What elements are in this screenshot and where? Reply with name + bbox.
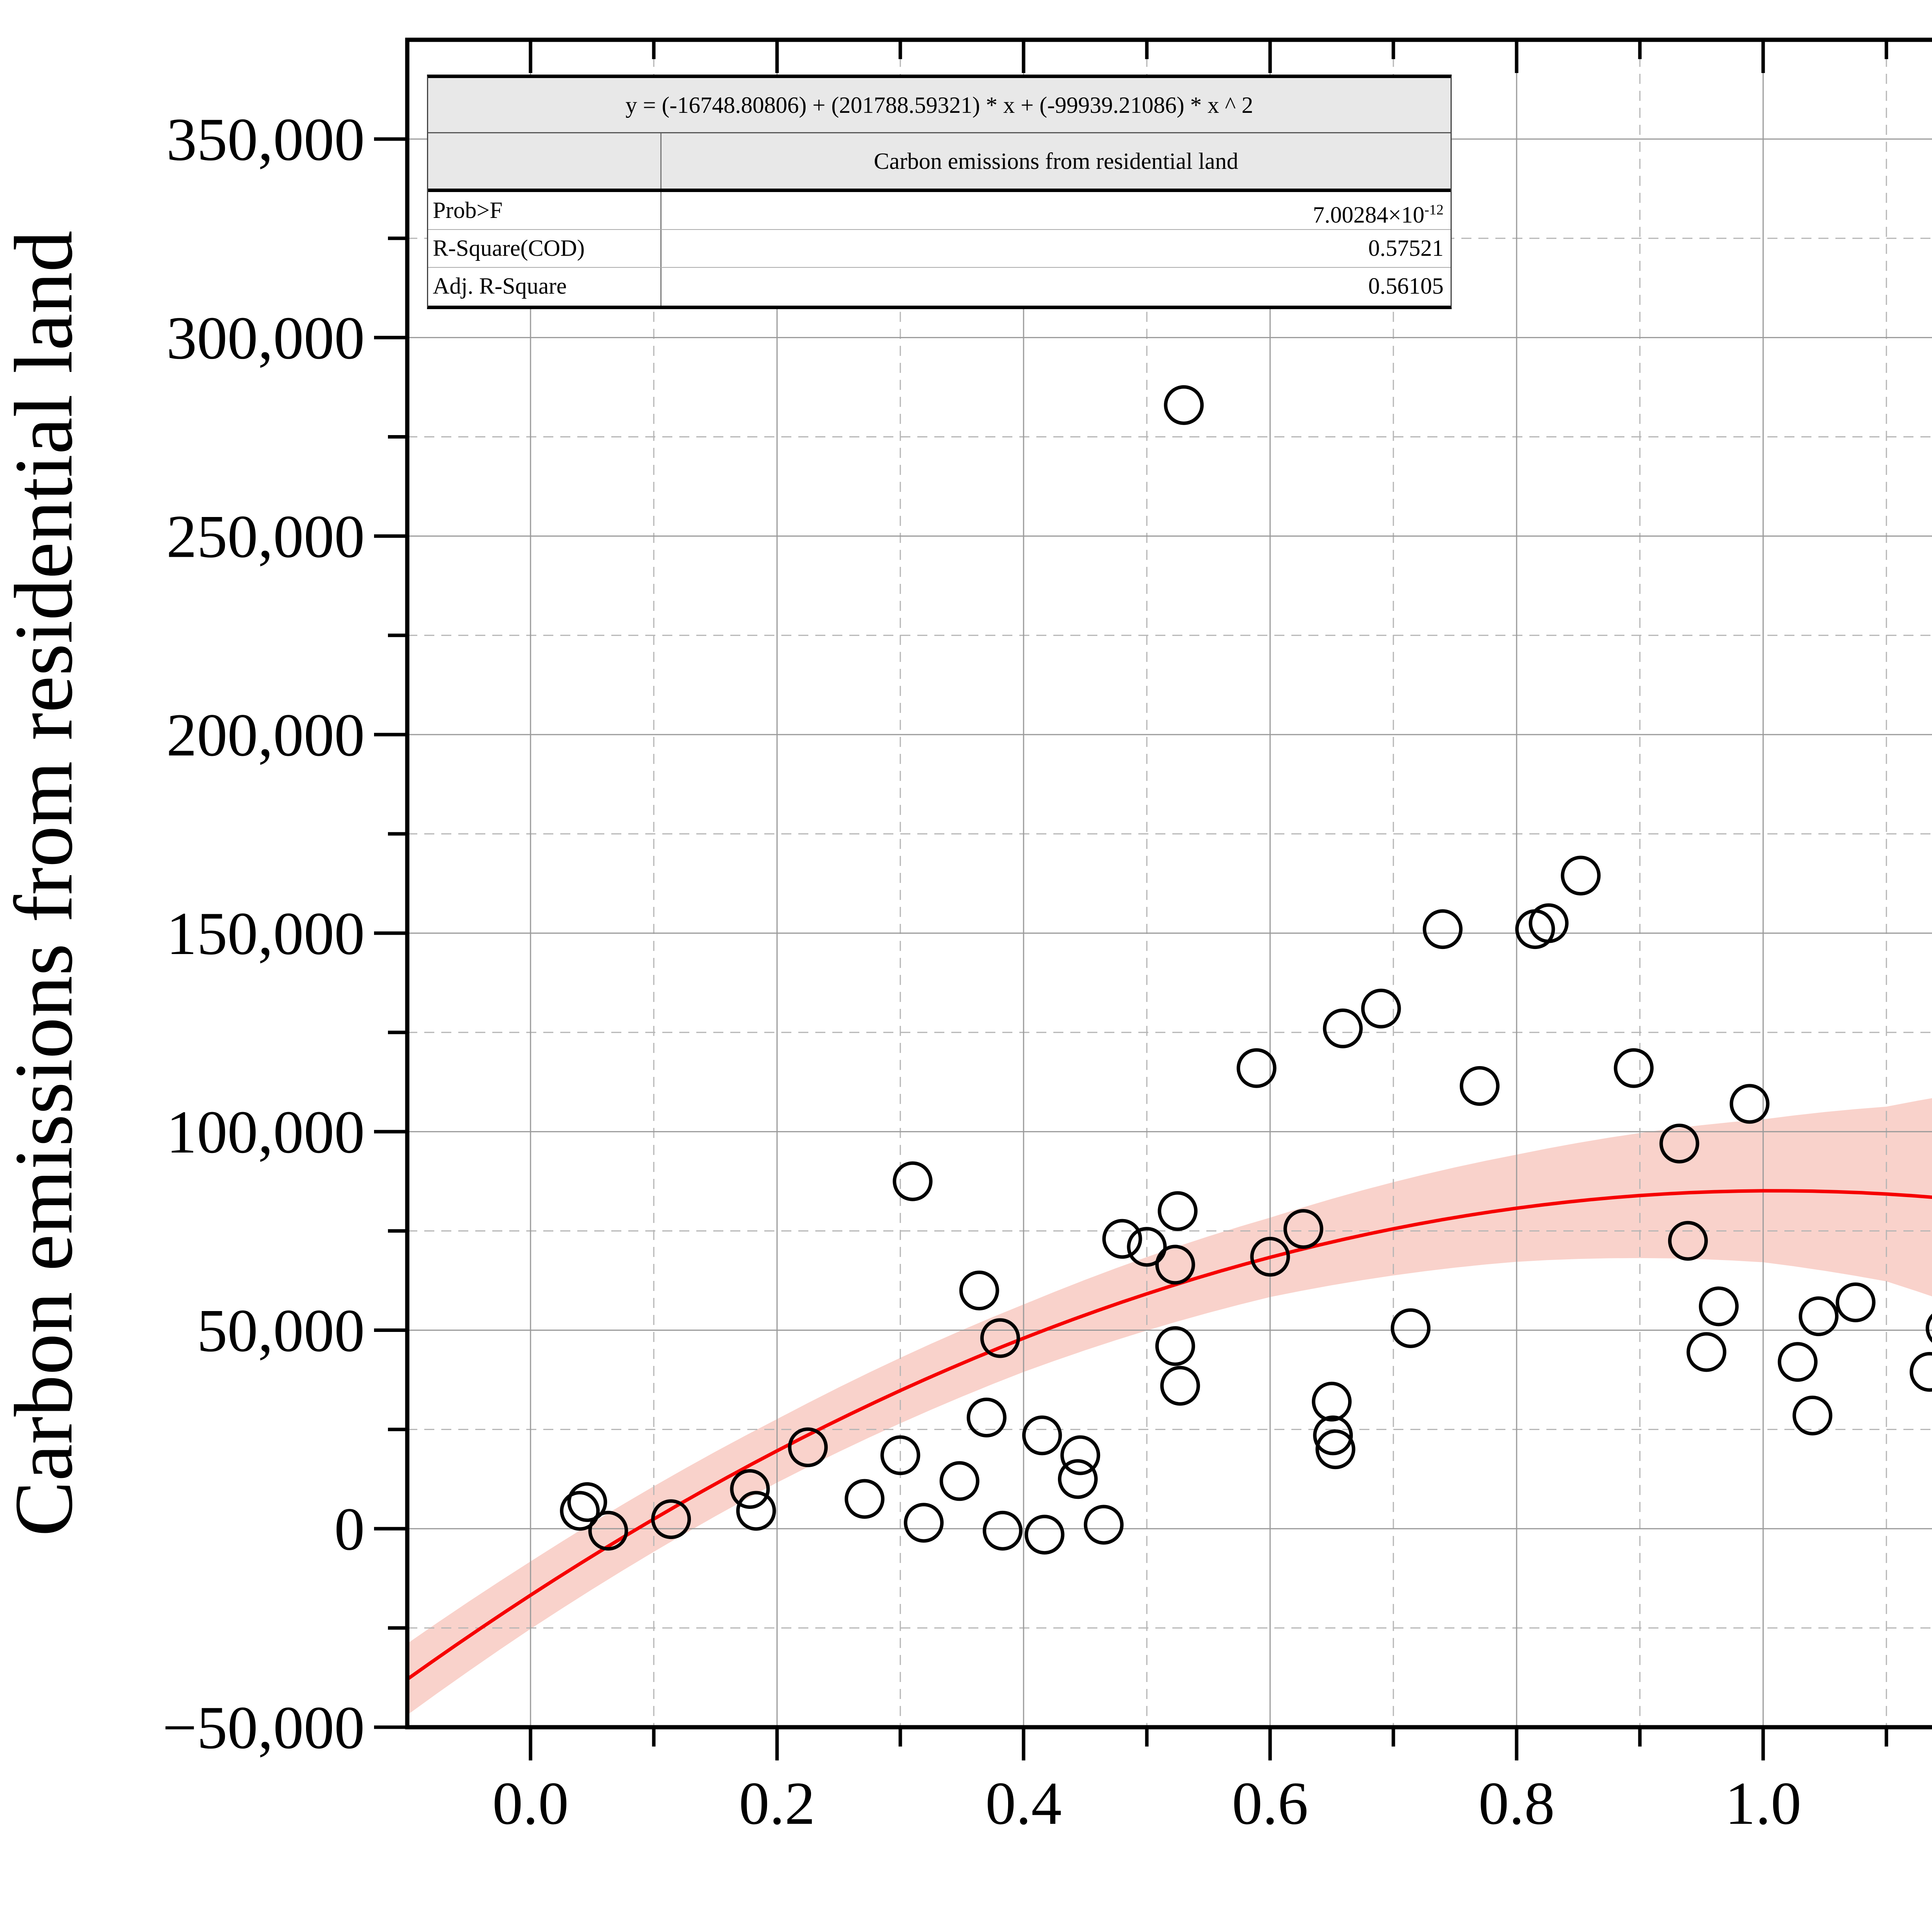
scatter-point bbox=[1160, 1193, 1196, 1229]
rsquare-label: R-Square(COD) bbox=[428, 230, 662, 267]
x-tick-label: 1.0 bbox=[1725, 1770, 1801, 1837]
x-tick-label: 0.8 bbox=[1478, 1770, 1555, 1837]
confidence-band bbox=[407, 1019, 1932, 1715]
scatter-point bbox=[1024, 1417, 1060, 1454]
adj-rsquare-value: 0.56105 bbox=[662, 268, 1451, 306]
scatter-point bbox=[1731, 1086, 1768, 1122]
scatter-point bbox=[1461, 1068, 1498, 1104]
scatter-point bbox=[1779, 1344, 1816, 1380]
rsquare-value: 0.57521 bbox=[662, 230, 1451, 267]
scatter-point bbox=[1927, 1310, 1932, 1346]
stat-row-adj-rsquare: Adj. R-Square 0.56105 bbox=[428, 268, 1451, 306]
scatter-point bbox=[1026, 1517, 1063, 1553]
scatter-points bbox=[562, 206, 1932, 1553]
stats-header-label: Carbon emissions from residential land bbox=[662, 133, 1451, 189]
scatter-point bbox=[1162, 1367, 1198, 1404]
axis-titles: Floor area ratioCarbon emissions from re… bbox=[0, 231, 1711, 1932]
x-tick-label: 0.4 bbox=[985, 1770, 1062, 1837]
scatter-point bbox=[1531, 905, 1567, 941]
y-tick-label: 0 bbox=[334, 1495, 365, 1563]
scatter-point bbox=[846, 1481, 883, 1517]
stats-header-empty-cell bbox=[428, 133, 662, 189]
scatter-point bbox=[1325, 1010, 1361, 1047]
regression-stats-table: y = (-16748.80806) + (201788.59321) * x … bbox=[427, 75, 1452, 309]
y-tick-label: 300,000 bbox=[167, 304, 365, 372]
scatter-point bbox=[1801, 1298, 1837, 1335]
scatter-point bbox=[961, 1272, 997, 1309]
y-tick-label: 50,000 bbox=[197, 1297, 365, 1364]
y-tick-label: 250,000 bbox=[167, 503, 365, 570]
prob-value: 7.00284×10-12 bbox=[662, 192, 1451, 229]
scatter-point bbox=[1794, 1397, 1831, 1434]
scatter-point bbox=[1688, 1334, 1725, 1370]
scatter-point bbox=[1314, 1383, 1350, 1420]
scatter-point bbox=[1563, 857, 1599, 894]
scatter-point bbox=[1166, 387, 1202, 423]
fit-equation: y = (-16748.80806) + (201788.59321) * x … bbox=[428, 78, 1451, 133]
x-tick-label: 0.0 bbox=[492, 1770, 569, 1837]
x-tick-label: 0.6 bbox=[1232, 1770, 1308, 1837]
scatter-point bbox=[1701, 1288, 1737, 1325]
stat-row-prob: Prob>F 7.00284×10-12 bbox=[428, 192, 1451, 230]
scatter-point bbox=[1104, 1221, 1140, 1257]
scatter-point bbox=[1157, 1328, 1193, 1364]
y-tick-label: 100,000 bbox=[167, 1099, 365, 1166]
regression-figure: 0.00.20.40.60.81.01.21.41.6−50,000050,00… bbox=[0, 0, 1932, 1932]
scatter-point bbox=[1085, 1507, 1122, 1543]
scatter-point bbox=[1912, 1354, 1932, 1390]
scatter-point bbox=[1238, 1050, 1275, 1086]
y-tick-label: 200,000 bbox=[167, 701, 365, 769]
scatter-point bbox=[1616, 1050, 1652, 1086]
stat-row-rsquare: R-Square(COD) 0.57521 bbox=[428, 230, 1451, 268]
tick-labels: 0.00.20.40.60.81.01.21.41.6−50,000050,00… bbox=[162, 106, 1932, 1837]
fit-equation-text: y = (-16748.80806) + (201788.59321) * x … bbox=[626, 92, 1253, 118]
prob-label: Prob>F bbox=[428, 192, 662, 229]
scatter-point bbox=[1837, 1284, 1874, 1321]
prob-value-exponent: -12 bbox=[1424, 202, 1444, 218]
scatter-point bbox=[906, 1505, 942, 1541]
stats-header-row: Carbon emissions from residential land bbox=[428, 133, 1451, 192]
x-axis-title: Floor area ratio bbox=[1199, 1929, 1711, 1932]
scatter-point bbox=[1062, 1437, 1099, 1473]
y-axis-title: Carbon emissions from residential land bbox=[0, 231, 90, 1537]
scatter-point bbox=[1363, 990, 1399, 1027]
y-tick-label: −50,000 bbox=[162, 1694, 365, 1762]
x-tick-label: 0.2 bbox=[739, 1770, 815, 1837]
scatter-point bbox=[1393, 1310, 1429, 1346]
scatter-point bbox=[941, 1463, 978, 1499]
scatter-point bbox=[738, 1493, 774, 1529]
y-tick-label: 150,000 bbox=[167, 900, 365, 968]
scatter-point bbox=[1425, 911, 1461, 947]
y-tick-label: 350,000 bbox=[167, 106, 365, 173]
scatter-point bbox=[985, 1512, 1021, 1549]
scatter-point bbox=[968, 1400, 1005, 1436]
adj-rsquare-label: Adj. R-Square bbox=[428, 268, 662, 306]
